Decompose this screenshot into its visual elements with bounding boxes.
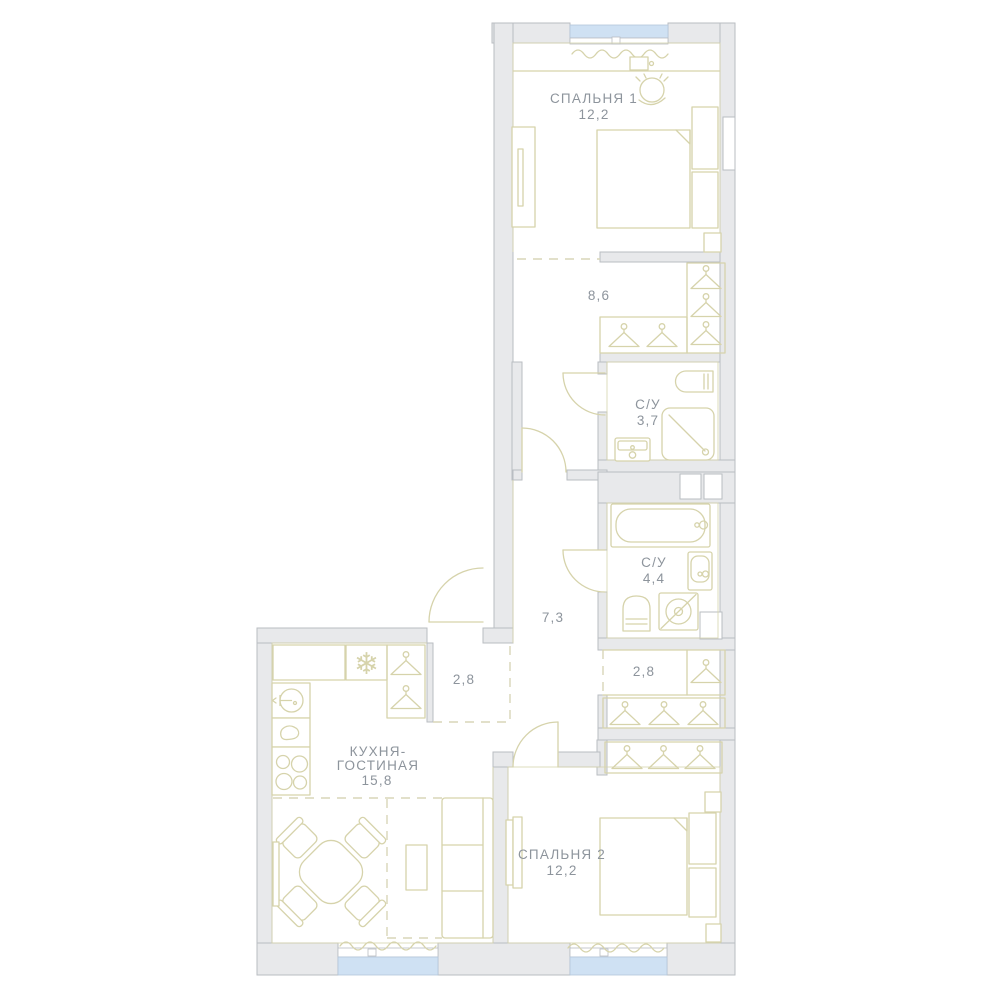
desk-knob [650,62,654,66]
coffee-table-icon [406,845,427,890]
nightstand-icon [705,792,721,812]
room-area-bath2: 4,4 [643,571,665,586]
wall [427,643,433,722]
nightstand-icon [704,233,721,252]
wall [598,412,607,460]
wall [512,362,522,480]
room-area-closet: 2,8 [633,664,655,679]
wall [600,353,720,362]
room-area-corridor: 7,3 [542,610,564,625]
tv-icon [506,820,513,885]
hall-wardrobes [600,263,725,353]
washing-machine-icon [659,593,698,630]
duct-shaft [723,117,735,170]
nightstand-icon [706,924,721,942]
zone-boundaries [273,259,603,938]
hanger-icon [691,322,721,345]
room-label-bath2: С/У [641,555,667,570]
closet-box [603,698,725,728]
room-area-bedroom1: 12,2 [578,107,609,122]
wall [598,592,607,640]
desk-icon [630,57,648,70]
window-top [570,25,668,44]
bedroom1-furniture [512,50,721,252]
closet-box [600,317,687,353]
hall-door [522,428,566,472]
hanger-icon [649,702,679,725]
closet-wardrobes [603,650,725,773]
sink-icon [688,552,712,590]
wall [494,23,513,643]
sink-icon [676,371,714,392]
bath2-door [563,550,605,592]
kitchen-sink-icon [272,683,310,718]
room-area-kitchen: 15,8 [361,773,392,788]
hanger-icon [391,686,421,709]
floor-plan-page: ❄ [0,0,1000,1000]
stove-icon [272,747,310,795]
bed-icon [600,792,721,942]
sofa-icon [442,798,493,938]
room-label-bath1: С/У [635,397,661,412]
wall [667,943,735,975]
duct-shaft [680,474,701,499]
wall [598,503,607,550]
hanger-icon [691,660,721,683]
wall [598,460,735,472]
bedroom2-door [513,722,558,767]
hanger-icon [609,324,639,347]
wall [558,752,600,767]
bed-icon [597,107,721,252]
duct-shaft [700,612,722,639]
mirror-icon [273,842,279,906]
snowflake-icon: ❄ [354,647,379,682]
counter-board-icon [272,718,310,747]
shower-icon [662,408,714,460]
toilet-icon [615,438,650,461]
wall [600,252,720,262]
room-label-kitchen-1: КУХНЯ- [350,744,407,759]
wall [598,362,607,374]
wall [598,728,735,740]
room-area-bath1: 3,7 [637,413,659,428]
hanger-icon [691,266,721,289]
room-label-kitchen-2: ГОСТИНАЯ [337,758,419,773]
room-area-bedroom2: 12,2 [546,863,577,878]
room-label-bedroom2: СПАЛЬНЯ 2 [518,847,606,862]
curtain-icon [572,50,668,58]
room-label-bedroom1: СПАЛЬНЯ 1 [550,91,638,106]
hanger-icon [691,294,721,317]
wall [598,638,735,650]
hanger-icon [685,746,715,769]
toilet-icon [623,596,650,631]
closet-box [687,650,725,695]
wall [438,943,570,975]
hanger-icon [391,652,421,675]
bathtub-icon [611,504,710,547]
bathroom1-fixtures [615,371,714,461]
entrance-door [429,568,483,622]
wall [493,752,513,767]
hanger-icon [647,324,677,347]
chair-icon [636,74,668,105]
bath1-door [563,373,605,415]
hanger-icon [688,702,718,725]
wall [257,628,427,643]
room-area-entry: 2,8 [453,672,475,687]
duct-shaft [704,474,722,499]
hanger-icon [610,702,640,725]
wall [483,628,513,643]
bedroom2-furniture [506,792,721,952]
hanger-icon [649,746,679,769]
window-bottom-left [338,948,438,975]
counter-icon [273,645,345,680]
floor-plan: ❄ [0,0,1000,1000]
room-area-hall: 8,6 [588,288,610,303]
hanger-icon [612,746,642,769]
closet-box [687,263,725,353]
wall [513,470,522,480]
wall [257,943,338,975]
wall [257,628,272,975]
kitchen-furniture: ❄ [243,645,493,960]
